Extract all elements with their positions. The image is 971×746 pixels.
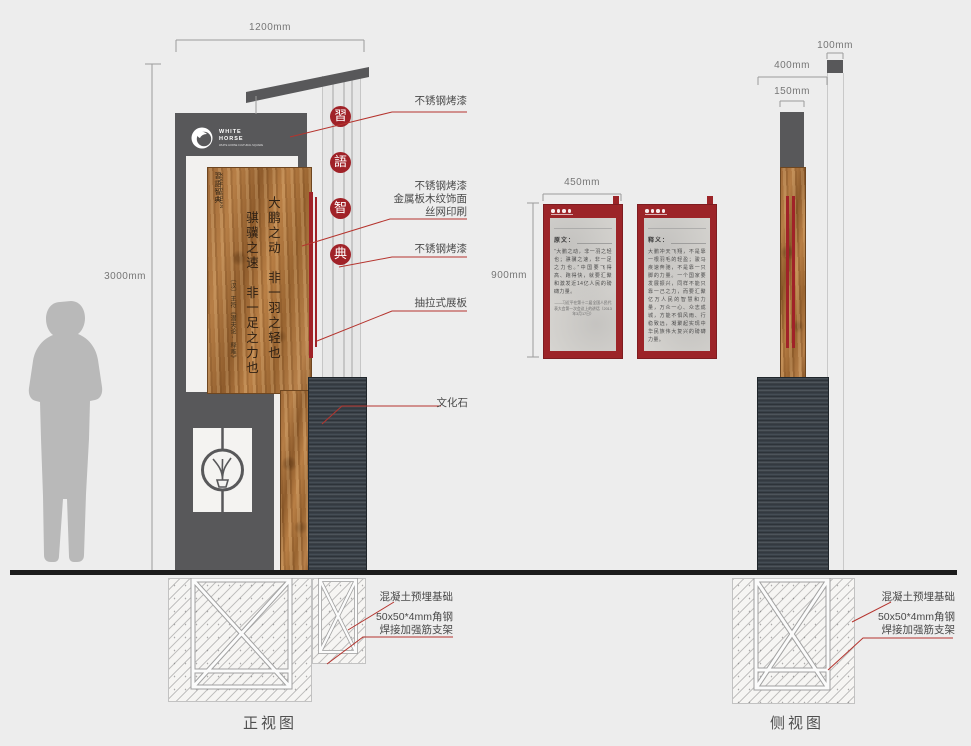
dim-900mm: 900mm — [491, 270, 527, 281]
pullout-board-edge-thin — [315, 197, 317, 347]
wood-strip-lower — [280, 390, 310, 574]
caption-front-view: 正视图 — [215, 712, 325, 733]
side-red-stripe — [792, 196, 795, 348]
roof-bar — [244, 64, 372, 106]
label-steel-paint-mid: 不锈钢烤漆 — [415, 243, 468, 256]
label-angle-steel-side: 50x50*4mm角钢 焊接加强筋支架 — [878, 611, 955, 637]
dim-450mm: 450mm — [532, 177, 632, 188]
logo-subtitle: WHITE HORSE CULTURAL SQUARE — [219, 144, 265, 147]
foundation-front-main-braces — [168, 578, 310, 700]
culture-stone-base-front — [308, 377, 367, 574]
panel-logo-dots — [551, 209, 573, 215]
medallion-1: 習 — [330, 106, 351, 127]
side-red-stripe — [786, 196, 789, 348]
label-foundation-side: 混凝土预埋基础 — [882, 591, 956, 604]
panel-b-body: 大鹏冲天飞翔，不是靠一根羽毛的轻盈；骏马疾速奔驰，不是靠一只脚的力量。一个国家要… — [648, 248, 706, 344]
medallion-2: 語 — [330, 152, 351, 173]
logo-line2: HORSE — [219, 136, 265, 143]
label-foundation-front: 混凝土预埋基础 — [380, 591, 454, 604]
culture-stone-base-side — [757, 377, 829, 574]
pullout-board-edge — [309, 192, 313, 358]
label-pullout-board: 抽拉式展板 — [415, 297, 468, 310]
panel-b-title: 释义： — [648, 235, 669, 244]
panel-b-paper: 释义： 大鹏冲天飞翔，不是靠一根羽毛的轻盈；骏马疾速奔驰，不是靠一只脚的力量。一… — [644, 218, 710, 351]
label-wood-finish: 不锈钢烤漆 金属板木纹饰面 丝网印刷 — [394, 180, 468, 219]
dim-150mm: 150mm — [742, 86, 842, 97]
dim-1200mm: 1200mm — [200, 22, 340, 33]
foundation-front-small-braces — [312, 578, 364, 662]
panel-a-paper: 原文： “大鹏之动，非一羽之轻也；骐骥之速，非一足之力也。”中国要飞得高、跑得快… — [550, 218, 616, 351]
back-fin-line — [843, 73, 844, 571]
calligraphy-column-2: 骐骥之速 非一足之力也 — [242, 211, 261, 391]
dim-3000mm: 3000mm — [104, 271, 146, 282]
wood-header-latin: XIYU ZHIDIAN — [219, 173, 224, 209]
brand-logo: WHITE HORSE WHITE HORSE CULTURAL SQUARE — [190, 124, 280, 152]
steel-strip — [352, 76, 361, 377]
calligraphy-citation: 〔汉〕王符《潜夫论·释难》 — [228, 276, 237, 376]
horse-logo-icon — [190, 126, 214, 150]
caption-side-view: 侧视图 — [742, 712, 852, 733]
foundation-side-braces — [732, 578, 853, 702]
side-column-steel-top — [780, 112, 804, 167]
human-scale-silhouette — [28, 298, 110, 572]
calligraphy-column-1: 大鹏之动 非一羽之轻也 — [264, 196, 283, 376]
dim-100mm: 100mm — [785, 40, 885, 51]
label-culture-stone: 文化石 — [437, 397, 469, 410]
panel-a-title: 原文： — [554, 235, 575, 244]
medallion-3: 智 — [330, 198, 351, 219]
plant-icon — [193, 428, 252, 512]
signage-design-sheet: 習語智典 XIYU ZHIDIAN 大鹏之动 非一羽之轻也 骐骥之速 非一足之力… — [0, 0, 971, 746]
panel-a-body: “大鹏之动，非一羽之轻也；骐骥之速，非一足之力也。”中国要飞得高、跑得快，就要汇… — [554, 248, 612, 296]
display-panel-original-text: 原文： “大鹏之动，非一羽之轻也；骐骥之速，非一足之力也。”中国要飞得高、跑得快… — [543, 204, 623, 359]
medallion-4: 典 — [330, 244, 351, 265]
panel-a-source: ——习近平在第十二届全国人民代表大会第一次会议上的讲话（2013年3月17日） — [554, 301, 612, 318]
panel-logo-dots — [645, 209, 667, 215]
display-panel-interpretation: 释义： 大鹏冲天飞翔，不是靠一根羽毛的轻盈；骏马疾速奔驰，不是靠一只脚的力量。一… — [637, 204, 717, 359]
dim-400mm: 400mm — [742, 60, 842, 71]
ground-line — [10, 570, 957, 575]
label-angle-steel-front: 50x50*4mm角钢 焊接加强筋支架 — [376, 611, 453, 637]
label-steel-paint-top: 不锈钢烤漆 — [415, 95, 468, 108]
